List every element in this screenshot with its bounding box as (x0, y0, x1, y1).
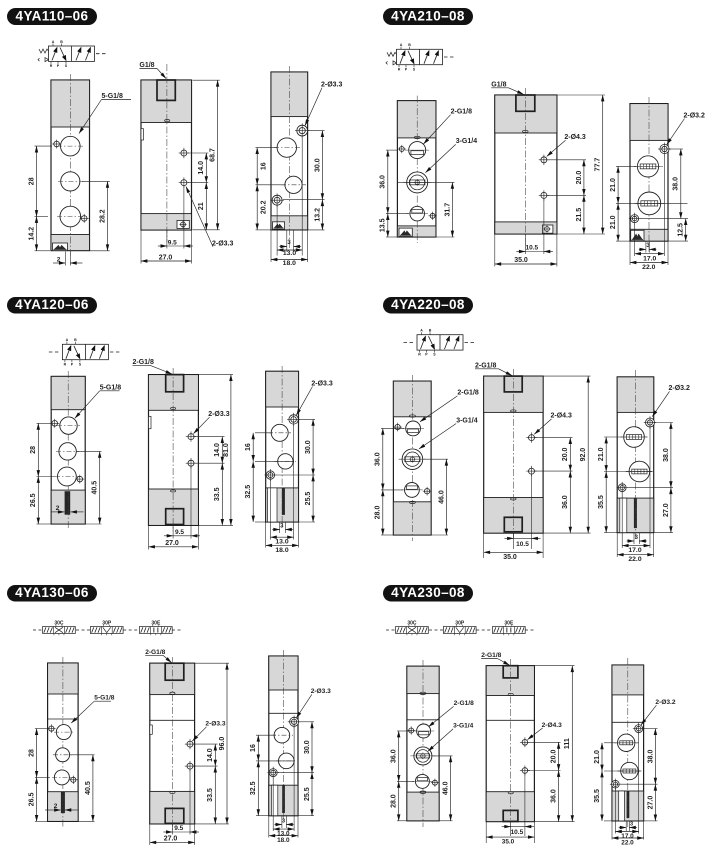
svg-text:27.0: 27.0 (663, 503, 670, 517)
svg-text:21.0: 21.0 (598, 447, 605, 461)
svg-text:21.0: 21.0 (610, 215, 617, 229)
svg-text:28.0: 28.0 (391, 794, 398, 808)
svg-text:2: 2 (54, 803, 58, 810)
svg-text:18.0: 18.0 (275, 547, 288, 554)
svg-text:35.0: 35.0 (502, 839, 515, 846)
svg-text:B: B (408, 43, 411, 47)
svg-text:5-G1/8: 5-G1/8 (94, 695, 114, 702)
svg-text:22.0: 22.0 (642, 264, 655, 271)
svg-text:4YA130–06: 4YA130–06 (15, 585, 89, 600)
svg-text:20.0: 20.0 (576, 171, 583, 185)
svg-text:30.0: 30.0 (304, 740, 311, 754)
svg-text:81.0: 81.0 (223, 443, 230, 457)
svg-text:2-Ø4.3: 2-Ø4.3 (564, 134, 586, 141)
svg-text:13.0: 13.0 (275, 539, 288, 546)
svg-text:38.0: 38.0 (647, 749, 654, 763)
svg-text:20.2: 20.2 (260, 200, 267, 214)
svg-text:2: 2 (56, 505, 60, 512)
svg-text:26.5: 26.5 (29, 792, 36, 806)
svg-text:36.0: 36.0 (391, 749, 398, 763)
svg-text:2-Ø3.3: 2-Ø3.3 (205, 721, 225, 728)
svg-text:30.0: 30.0 (305, 440, 312, 454)
svg-text:26.5: 26.5 (30, 493, 37, 507)
svg-text:28.0: 28.0 (375, 506, 382, 520)
svg-text:46.0: 46.0 (438, 490, 445, 504)
svg-text:2-G1/8: 2-G1/8 (481, 652, 501, 659)
svg-text:2-G1/8: 2-G1/8 (475, 362, 497, 369)
svg-text:5-G1/8: 5-G1/8 (100, 384, 122, 391)
svg-text:14.0: 14.0 (207, 748, 214, 762)
svg-text:35.0: 35.0 (514, 257, 528, 264)
svg-text:36.0: 36.0 (551, 789, 558, 803)
svg-text:36.0: 36.0 (375, 452, 382, 466)
svg-text:A: A (420, 329, 423, 333)
svg-text:2-Ø3.2: 2-Ø3.2 (684, 112, 706, 119)
svg-text:2-G1/8: 2-G1/8 (145, 649, 165, 656)
svg-text:B: B (429, 329, 432, 333)
svg-text:28: 28 (28, 177, 35, 185)
svg-text:13.0: 13.0 (283, 250, 296, 257)
svg-text:36.0: 36.0 (562, 495, 569, 509)
svg-text:A: A (66, 338, 69, 342)
svg-text:35.5: 35.5 (598, 495, 605, 509)
svg-text:27.0: 27.0 (647, 796, 654, 810)
svg-text:18.0: 18.0 (283, 260, 296, 267)
svg-text:2-Ø3.3: 2-Ø3.3 (311, 380, 333, 387)
svg-text:16: 16 (245, 443, 252, 451)
svg-text:2-G1/8: 2-G1/8 (454, 700, 474, 707)
svg-text:21.0: 21.0 (610, 178, 617, 192)
svg-text:32.5: 32.5 (250, 781, 257, 795)
svg-text:21: 21 (198, 202, 205, 210)
svg-text:4YA230–08: 4YA230–08 (391, 585, 465, 600)
svg-text:2-G1/8: 2-G1/8 (451, 109, 473, 116)
svg-text:46.0: 46.0 (443, 781, 450, 795)
svg-text:5-G1/8: 5-G1/8 (102, 93, 124, 100)
svg-text:35.5: 35.5 (594, 789, 601, 803)
svg-text:2-Ø3.2: 2-Ø3.2 (669, 385, 691, 392)
svg-text:17.0: 17.0 (643, 255, 656, 262)
svg-text:3: 3 (630, 821, 633, 827)
svg-text:96.0: 96.0 (219, 737, 226, 751)
svg-text:68.7: 68.7 (210, 148, 217, 162)
svg-text:14.2: 14.2 (28, 227, 35, 241)
svg-text:25.5: 25.5 (304, 787, 311, 801)
svg-text:35.0: 35.0 (503, 554, 517, 561)
svg-text:13.2: 13.2 (314, 208, 321, 222)
svg-text:A: A (400, 43, 403, 47)
svg-text:27.0: 27.0 (159, 254, 173, 261)
svg-text:G1/8: G1/8 (139, 62, 154, 69)
svg-text:9.5: 9.5 (175, 529, 184, 536)
svg-text:77.7: 77.7 (595, 158, 602, 172)
svg-text:10.5: 10.5 (511, 829, 524, 836)
svg-text:R: R (50, 64, 53, 68)
svg-text:31.7: 31.7 (444, 203, 451, 217)
svg-text:14.0: 14.0 (198, 161, 205, 175)
svg-text:28: 28 (29, 749, 36, 757)
svg-text:38.0: 38.0 (663, 448, 670, 462)
svg-text:14.0: 14.0 (214, 443, 221, 457)
svg-text:33.5: 33.5 (207, 788, 214, 802)
svg-text:27.0: 27.0 (165, 540, 179, 547)
svg-text:40.5: 40.5 (85, 781, 92, 795)
svg-text:92.0: 92.0 (580, 448, 587, 462)
svg-text:32.5: 32.5 (245, 485, 252, 499)
svg-text:2-Ø3.3: 2-Ø3.3 (311, 688, 331, 695)
svg-text:20.0: 20.0 (551, 749, 558, 763)
svg-text:16: 16 (260, 162, 267, 170)
svg-text:22.0: 22.0 (621, 839, 634, 846)
svg-text:4YA210–08: 4YA210–08 (391, 8, 465, 23)
svg-text:4YA220–08: 4YA220–08 (391, 297, 465, 312)
svg-text:2-Ø3.3: 2-Ø3.3 (208, 411, 230, 418)
svg-text:R: R (418, 353, 421, 357)
svg-text:30.0: 30.0 (314, 158, 321, 172)
svg-text:4YA110–06: 4YA110–06 (16, 8, 89, 23)
svg-text:38.0: 38.0 (673, 177, 680, 191)
svg-text:R: R (398, 67, 401, 71)
svg-text:A: A (52, 40, 55, 44)
svg-text:2-G1/8: 2-G1/8 (457, 390, 479, 397)
svg-text:27.0: 27.0 (164, 836, 178, 843)
svg-text:40.5: 40.5 (92, 481, 99, 495)
svg-text:2-G1/8: 2-G1/8 (133, 359, 155, 366)
svg-text:25.5: 25.5 (305, 492, 312, 506)
svg-text:12.5: 12.5 (678, 223, 685, 237)
svg-text:20.0: 20.0 (562, 447, 569, 461)
svg-text:28: 28 (30, 446, 37, 454)
svg-text:28.2: 28.2 (99, 209, 106, 223)
svg-text:13.5: 13.5 (380, 218, 387, 232)
svg-text:B: B (60, 40, 63, 44)
svg-text:3-G1/4: 3-G1/4 (456, 417, 478, 424)
svg-text:2-Ø4.3: 2-Ø4.3 (551, 413, 573, 420)
svg-text:36.0: 36.0 (380, 175, 387, 189)
svg-text:R: R (64, 362, 67, 366)
svg-text:10.5: 10.5 (525, 245, 538, 252)
svg-text:17.0: 17.0 (628, 547, 641, 554)
svg-text:22.0: 22.0 (628, 556, 641, 563)
svg-text:21.0: 21.0 (594, 750, 601, 764)
svg-text:2-Ø3.2: 2-Ø3.2 (655, 699, 675, 706)
svg-text:10.5: 10.5 (516, 541, 529, 548)
svg-text:21.5: 21.5 (576, 208, 583, 222)
svg-text:3-G1/4: 3-G1/4 (453, 723, 473, 730)
svg-text:2-Ø3.3: 2-Ø3.3 (212, 241, 234, 248)
svg-text:3: 3 (282, 818, 285, 824)
svg-text:111: 111 (564, 738, 571, 749)
svg-text:33.5: 33.5 (214, 487, 221, 501)
svg-text:4YA120–06: 4YA120–06 (15, 297, 89, 312)
svg-text:3-G1/4: 3-G1/4 (456, 138, 478, 145)
svg-text:9.5: 9.5 (174, 825, 183, 832)
svg-text:18.0: 18.0 (277, 837, 290, 844)
svg-text:G1/8: G1/8 (491, 81, 506, 88)
svg-text:2: 2 (57, 257, 61, 264)
svg-text:B: B (74, 338, 77, 342)
svg-text:2-Ø4.3: 2-Ø4.3 (542, 722, 562, 729)
svg-text:2-Ø3.3: 2-Ø3.3 (321, 82, 343, 89)
svg-text:9.5: 9.5 (168, 239, 177, 246)
svg-text:16: 16 (250, 744, 257, 752)
